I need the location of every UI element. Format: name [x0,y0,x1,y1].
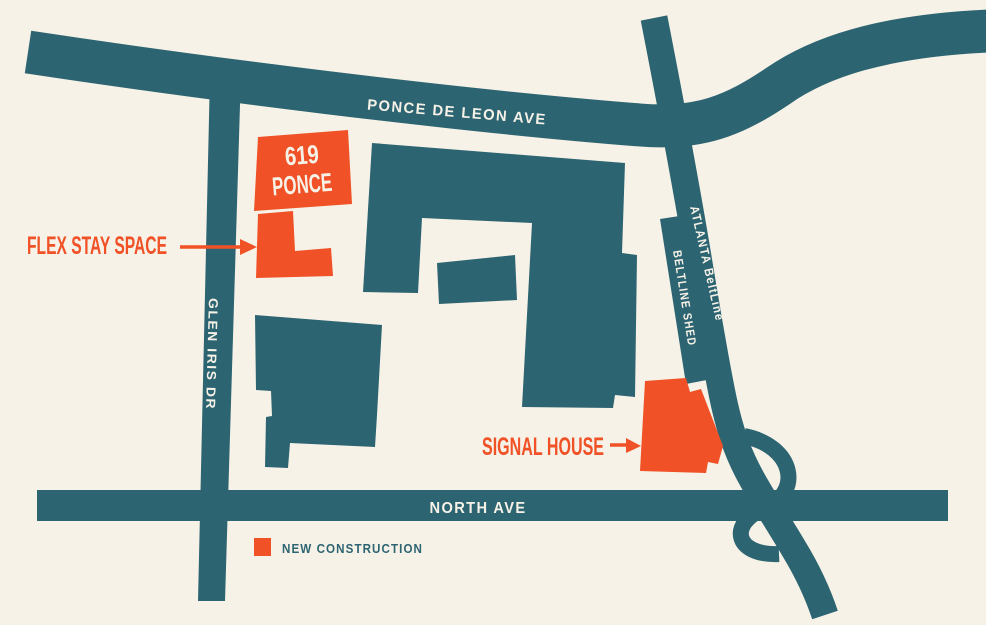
lower-left-building [255,315,382,468]
site-map-canvas: PONCE DE LEON AVE NORTH AVE GLEN IRIS DR… [0,0,986,625]
flex-stay-space-label: FLEX STAY SPACE [27,232,167,260]
signal-house-label: SIGNAL HOUSE [482,433,604,461]
619-ponce-label-line1: 619 [284,139,320,172]
legend: NEW CONSTRUCTION [254,538,423,556]
road-label-glen-iris: GLEN IRIS DR [203,298,221,410]
619-ponce-label-line2: PONCE [271,167,333,202]
flex-stay-space-building [256,211,333,278]
road-label-north-ave: NORTH AVE [430,500,527,517]
legend-new-construction-swatch [254,538,271,556]
site-map: PONCE DE LEON AVE NORTH AVE GLEN IRIS DR… [0,0,986,625]
legend-new-construction-label: NEW CONSTRUCTION [282,541,423,556]
signal-house-arrowhead [626,438,641,453]
courtyard-building [437,255,517,304]
flex-stay-space-arrowhead [240,239,257,255]
